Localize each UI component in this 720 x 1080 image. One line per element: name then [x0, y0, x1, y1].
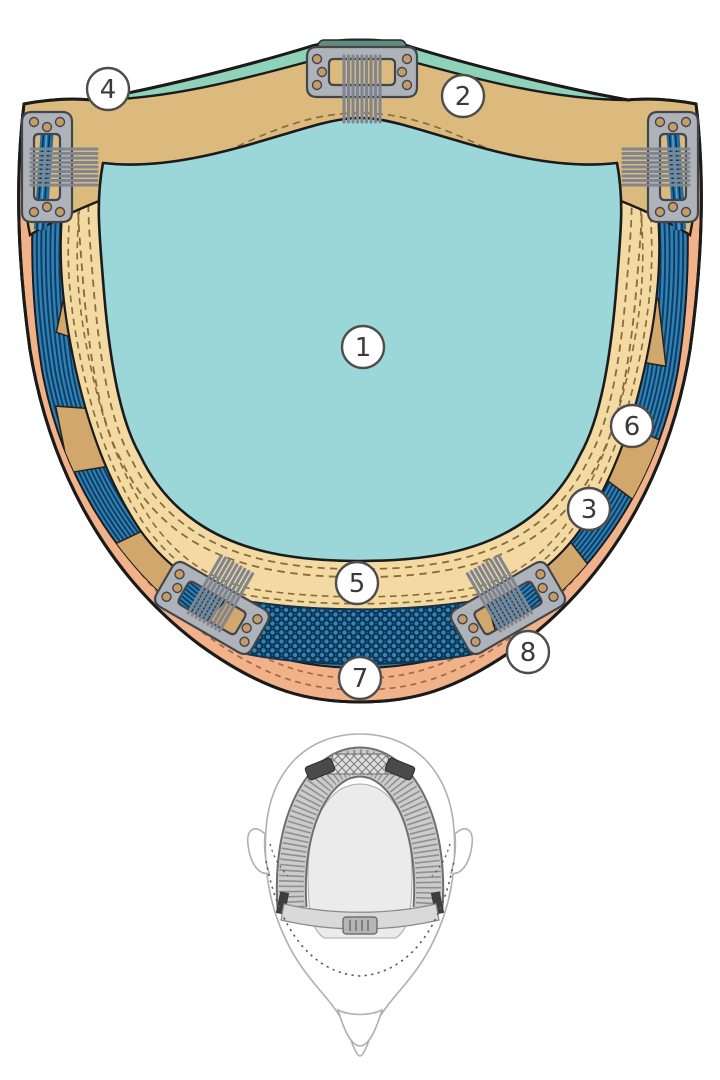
cap-mesh-top — [328, 754, 392, 774]
callout-1: 1 — [342, 326, 384, 368]
cap-construction-diagram: 1 2 3 4 5 6 7 8 — [0, 0, 720, 720]
callout-2-label: 2 — [455, 82, 472, 112]
chin-tip — [338, 1010, 382, 1046]
head-placement-inset — [238, 724, 482, 1072]
callout-7-label: 7 — [352, 664, 369, 694]
callout-8: 8 — [507, 631, 549, 673]
callout-4: 4 — [87, 68, 129, 110]
callout-3-label: 3 — [581, 495, 598, 525]
nape-mesh-panel — [238, 602, 482, 664]
callout-4-label: 4 — [100, 75, 117, 105]
callout-5: 5 — [336, 562, 378, 604]
callout-1-label: 1 — [355, 333, 372, 363]
callout-6-label: 6 — [624, 412, 641, 442]
callout-6: 6 — [611, 405, 653, 447]
callout-5-label: 5 — [349, 569, 366, 599]
callout-8-label: 8 — [520, 638, 537, 668]
callout-7: 7 — [339, 657, 381, 699]
wig-cap-construction-figure: 1 2 3 4 5 6 7 8 — [0, 0, 720, 1080]
callout-3: 3 — [568, 488, 610, 530]
callout-2: 2 — [442, 75, 484, 117]
cap-clip-bottom-center — [343, 917, 377, 934]
